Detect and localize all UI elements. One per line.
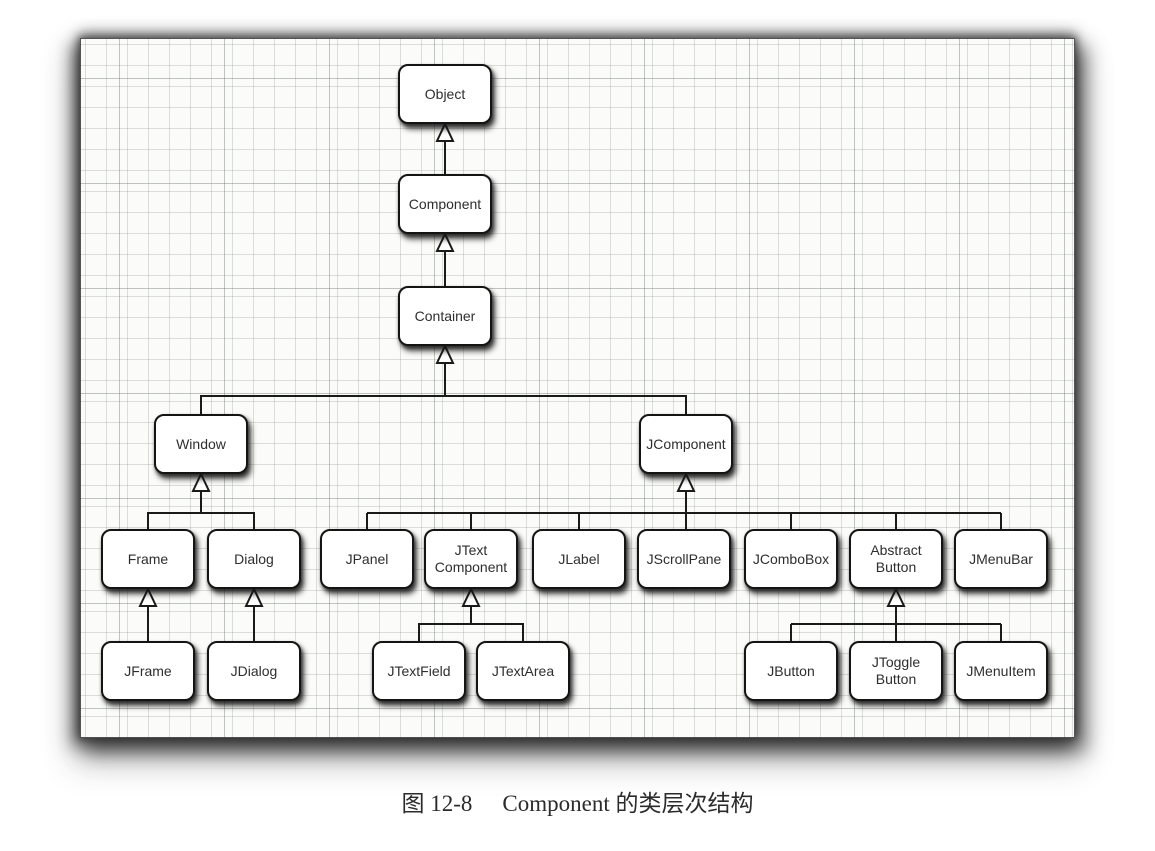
figure-caption: 图 12-8Component 的类层次结构: [80, 784, 1075, 818]
class-node-abstractbutton: Abstract Button: [849, 529, 943, 589]
grid-paper-sheet: Object Component Container Window JCompo…: [80, 38, 1075, 738]
class-node-jtextarea: JTextArea: [476, 641, 570, 701]
class-node-jscrollpane: JScrollPane: [637, 529, 731, 589]
class-node-jcomponent: JComponent: [639, 414, 733, 474]
class-node-container: Container: [398, 286, 492, 346]
class-node-window: Window: [154, 414, 248, 474]
class-node-jtextfield: JTextField: [372, 641, 466, 701]
class-node-component: Component: [398, 174, 492, 234]
class-node-jmenubar: JMenuBar: [954, 529, 1048, 589]
class-node-jpanel: JPanel: [320, 529, 414, 589]
figure-title: Component 的类层次结构: [502, 791, 753, 816]
class-node-jdialog: JDialog: [207, 641, 301, 701]
class-node-jframe: JFrame: [101, 641, 195, 701]
class-node-jtogglebutton: JToggle Button: [849, 641, 943, 701]
class-node-jmenuitem: JMenuItem: [954, 641, 1048, 701]
class-node-jcombobox: JComboBox: [744, 529, 838, 589]
class-node-jlabel: JLabel: [532, 529, 626, 589]
class-node-jbutton: JButton: [744, 641, 838, 701]
class-node-frame: Frame: [101, 529, 195, 589]
class-node-jtextcomponent: JText Component: [424, 529, 518, 589]
class-node-object: Object: [398, 64, 492, 124]
class-node-dialog: Dialog: [207, 529, 301, 589]
connector-layer: [81, 39, 1076, 739]
figure-number: 图 12-8: [401, 791, 472, 816]
